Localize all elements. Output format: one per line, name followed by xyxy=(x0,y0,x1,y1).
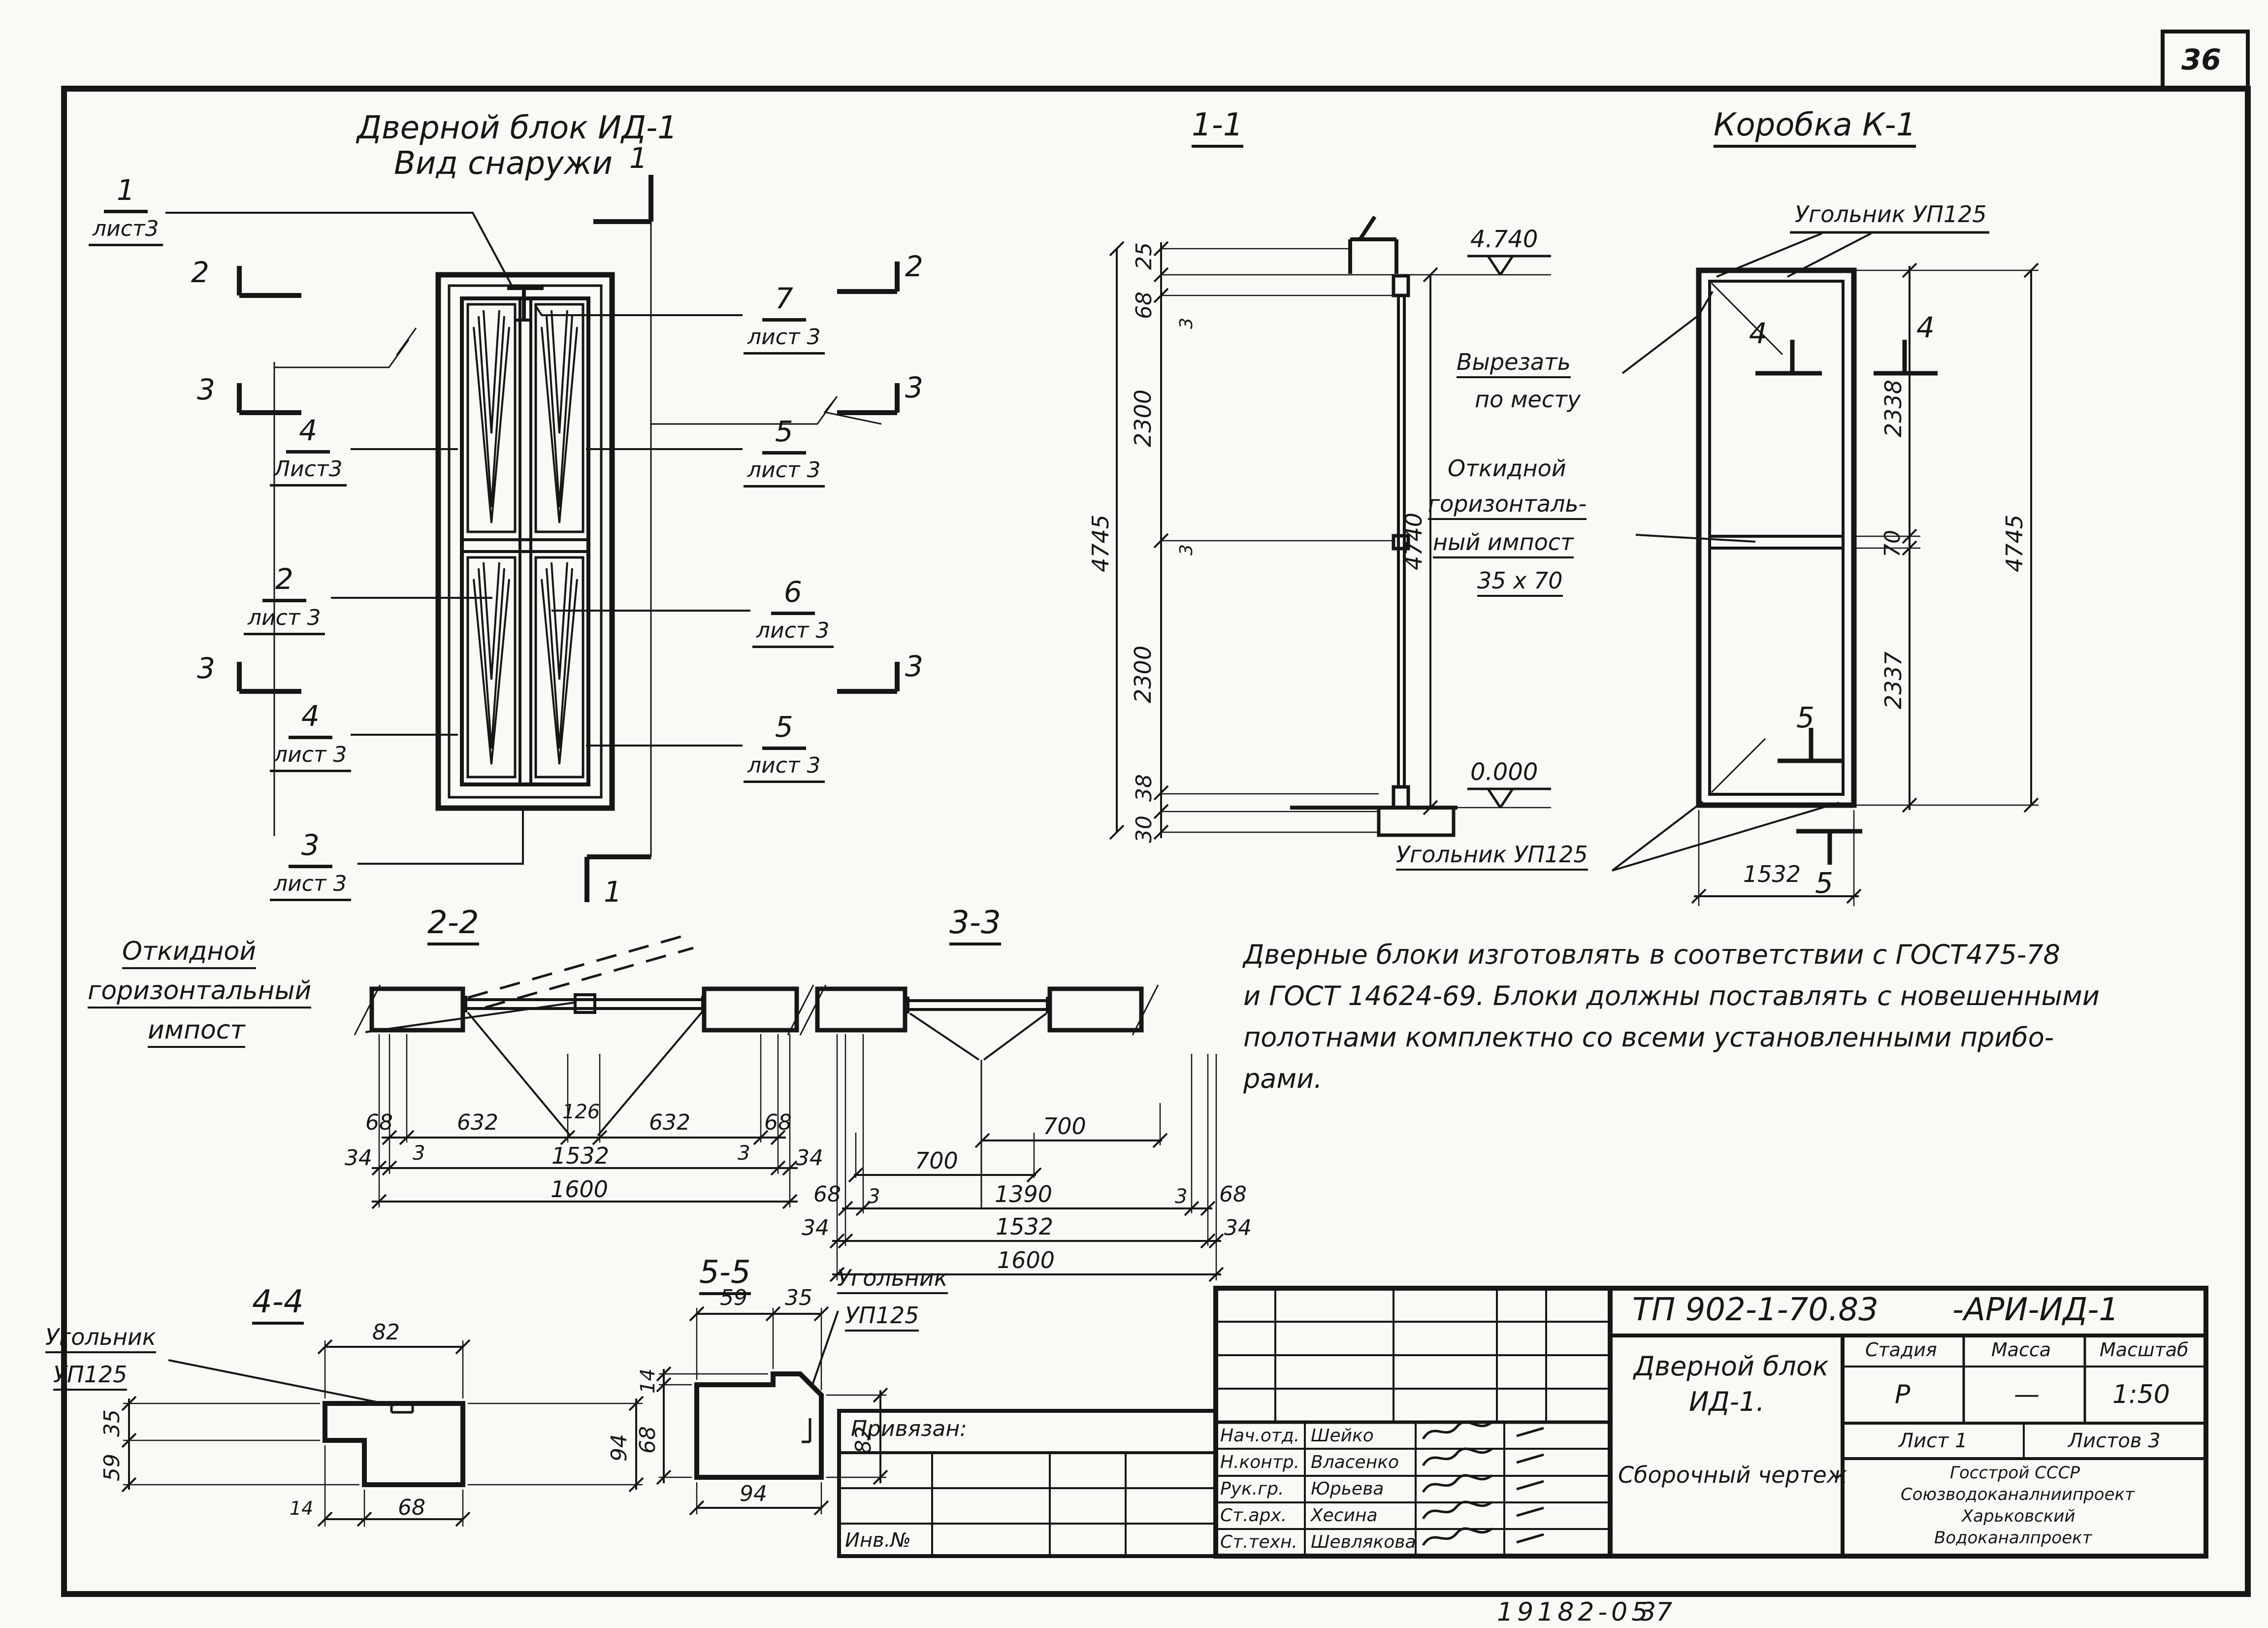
callout-3-number: 3 xyxy=(289,828,332,868)
callout-6-number: 6 xyxy=(771,575,815,615)
callout-4a-sheet-ref: Лист3 xyxy=(270,456,347,487)
section-marker-1-bottom: 1 xyxy=(604,878,622,906)
callout-2-number: 2 xyxy=(262,562,306,602)
elevation-mark-top: 4.740 xyxy=(1470,228,1538,251)
dim-3-3-34a: 34 xyxy=(802,1217,829,1239)
dim-3-3-68b: 68 xyxy=(1219,1184,1247,1205)
korobka-impost-label-line1: Откидной xyxy=(1448,457,1566,480)
callout-2-sheet-ref: лист 3 xyxy=(244,605,325,635)
stamp-title-line3: Сборочный чертеж xyxy=(1618,1464,1847,1486)
korobka-ugolnik-top-label: Угольник УП125 xyxy=(1795,203,1987,226)
dim-3-3-700-left: 700 xyxy=(915,1149,958,1172)
dim-1-1-3b: 3 xyxy=(1178,544,1196,555)
section-1-1-title: 1-1 xyxy=(1192,109,1243,148)
stage-value: Р xyxy=(1895,1382,1910,1407)
dim-3-3-1390: 1390 xyxy=(995,1183,1052,1205)
doc-number: ТП 902-1-70.83 xyxy=(1632,1294,1879,1326)
dim-2-2-632a: 632 xyxy=(457,1112,498,1134)
section-marker-2-left: 2 xyxy=(191,258,209,287)
korobka-linework xyxy=(1612,232,2039,906)
callout-detail-6: 6 лист 3 xyxy=(752,575,834,648)
callout-detail-5a: 5 лист 3 xyxy=(744,415,825,488)
sig-role-3: Ст.арх. xyxy=(1220,1507,1287,1525)
dim-1-1-68: 68 xyxy=(1134,292,1155,319)
ugolnik-label-4-4-line1: Угольник xyxy=(45,1326,156,1353)
mass-label: Масса xyxy=(1991,1340,2051,1359)
dim-2-2-632b: 632 xyxy=(649,1112,690,1134)
korobka-impost-label-line2: горизонталь- xyxy=(1428,492,1587,520)
elevation-mark-bottom: 0.000 xyxy=(1470,760,1538,784)
section-marker-3-left-b: 3 xyxy=(197,654,215,683)
callout-detail-2: 2 лист 3 xyxy=(244,562,325,635)
korobka-marker-5-bottom: 5 xyxy=(1815,869,1833,897)
elevation-title-line1: Дверной блок ИД-1 xyxy=(357,112,678,144)
dim-3-3-700-right: 700 xyxy=(1043,1115,1086,1138)
binding-label: Привязан: xyxy=(851,1418,967,1440)
callout-5b-number: 5 xyxy=(762,710,806,750)
dim-2-2-34a: 34 xyxy=(345,1147,372,1169)
elevation-callout-leaders xyxy=(165,213,750,864)
dim-4-4-68: 68 xyxy=(398,1497,425,1519)
dim-2-2-1532: 1532 xyxy=(551,1144,609,1167)
org-line4: Водоканалпроект xyxy=(1934,1530,2092,1546)
dim-5-5-68: 68 xyxy=(637,1426,659,1454)
section-3-3-title: 3-3 xyxy=(949,907,1001,945)
dim-3-3-3a: 3 xyxy=(868,1187,880,1206)
dim-korobka-total: 4745 xyxy=(2003,515,2026,572)
door-elevation-linework xyxy=(438,275,612,808)
dim-2-2-126: 126 xyxy=(562,1102,600,1122)
callout-7-sheet-ref: лист 3 xyxy=(744,325,825,355)
korobka-impost-label-line4: 35 x 70 xyxy=(1477,569,1563,597)
sig-name-2: Юрьева xyxy=(1311,1480,1384,1498)
sheet-corner-number: 36 xyxy=(2181,45,2221,74)
ugolnik-label-4-4-line2: УП125 xyxy=(53,1363,127,1391)
footer-code: 19182-05 xyxy=(1497,1599,1652,1625)
impost-label-2-2-line1: Откидной xyxy=(122,939,256,969)
note-line3: полотнами комплектно со всеми установлен… xyxy=(1243,1024,2054,1051)
note-line1: Дверные блоки изготовлять в соответствии… xyxy=(1243,942,2060,968)
sig-role-4: Ст.техн. xyxy=(1220,1533,1297,1551)
ugolnik-label-5-5-line1: Угольник xyxy=(837,1267,948,1294)
org-line1: Госстрой СССР xyxy=(1950,1465,2080,1481)
callout-5a-sheet-ref: лист 3 xyxy=(744,457,825,488)
sig-role-1: Н.контр. xyxy=(1220,1454,1299,1471)
dim-1-1-total-left: 4745 xyxy=(1089,515,1112,572)
dim-1-1-2300a: 2300 xyxy=(1132,390,1154,447)
korobka-cut-label-line2: по месту xyxy=(1475,388,1581,411)
dim-1-1-25: 25 xyxy=(1134,242,1155,270)
section-2-2-title: 2-2 xyxy=(427,907,479,945)
korobka-cut-label-line1: Вырезать xyxy=(1457,351,1571,378)
section-marker-3-left-a: 3 xyxy=(197,375,215,404)
dim-3-3-1532: 1532 xyxy=(996,1215,1053,1238)
note-line4: рами. xyxy=(1243,1066,1322,1092)
korobka-impost-label-line3: ный импост xyxy=(1433,531,1574,558)
callout-3-sheet-ref: лист 3 xyxy=(270,871,351,901)
korobka-marker-5-top: 5 xyxy=(1796,703,1814,732)
dim-2-2-34b: 34 xyxy=(796,1147,823,1169)
section-marker-3-right-b: 3 xyxy=(905,652,923,681)
dim-3-3-34b: 34 xyxy=(1224,1217,1252,1239)
stamp-title-line2: ИД-1. xyxy=(1689,1389,1765,1415)
stage-label: Стадия xyxy=(1865,1340,1937,1359)
korobka-ugolnik-bottom-label: Угольник УП125 xyxy=(1396,843,1588,871)
dim-5-5-59: 59 xyxy=(720,1287,747,1309)
callout-1-number: 1 xyxy=(104,173,148,213)
elevation-title-line2: Вид снаружи xyxy=(394,148,613,179)
callout-detail-3: 3 лист 3 xyxy=(270,828,351,901)
org-line2: Союзводоканалниипроект xyxy=(1901,1486,2135,1503)
sig-name-4: Шевлякова xyxy=(1311,1533,1416,1551)
callout-4a-number: 4 xyxy=(286,414,330,454)
signature-scribbles xyxy=(1423,1422,1544,1545)
dim-3-3-3b: 3 xyxy=(1175,1187,1187,1206)
dim-4-4-14: 14 xyxy=(290,1499,313,1518)
sig-name-1: Власенко xyxy=(1311,1454,1399,1471)
callout-detail-1: 1 лист3 xyxy=(89,173,163,246)
dim-4-4-35: 35 xyxy=(101,1409,123,1437)
callout-detail-5b: 5 лист 3 xyxy=(744,710,825,783)
doc-number-suffix: -АРИ-ИД-1 xyxy=(1952,1294,2119,1326)
dim-2-2-68a: 68 xyxy=(365,1112,393,1134)
callout-5a-number: 5 xyxy=(762,415,806,455)
section-marker-1-top: 1 xyxy=(629,144,648,172)
section-marker-2-right: 2 xyxy=(905,252,923,281)
sig-role-0: Нач.отд. xyxy=(1220,1427,1299,1445)
dim-5-5-35: 35 xyxy=(785,1287,812,1309)
note-line2: и ГОСТ 14624-69. Блоки должны поставлять… xyxy=(1243,983,2100,1009)
footer-sheet-number: 37 xyxy=(1640,1599,1672,1625)
callout-1-sheet-ref: лист3 xyxy=(89,216,163,246)
dim-4-4-59: 59 xyxy=(101,1454,123,1481)
section-marker-3-right-a: 3 xyxy=(905,373,923,402)
dim-3-3-1600: 1600 xyxy=(997,1249,1055,1271)
impost-label-2-2-line2: горизонтальный xyxy=(88,978,311,1009)
dim-korobka-70: 70 xyxy=(1882,530,1904,557)
callout-5b-sheet-ref: лист 3 xyxy=(744,753,825,783)
korobka-title: Коробка К-1 xyxy=(1714,109,1916,148)
callout-detail-7: 7 лист 3 xyxy=(744,282,825,355)
scale-value: 1:50 xyxy=(2112,1382,2170,1407)
dim-1-1-30: 30 xyxy=(1134,815,1155,843)
sheets-cell: Листов 3 xyxy=(2068,1431,2161,1451)
section-4-4-linework xyxy=(122,1340,643,1527)
dim-2-2-3b: 3 xyxy=(738,1143,750,1163)
dim-4-4-82: 82 xyxy=(372,1322,400,1343)
inventory-label: Инв.№ xyxy=(845,1530,911,1550)
callout-4b-number: 4 xyxy=(289,699,332,739)
sig-role-2: Рук.гр. xyxy=(1220,1480,1284,1498)
dim-2-2-3a: 3 xyxy=(413,1143,425,1163)
dim-1-1-total-right: 4740 xyxy=(1402,513,1425,570)
dim-4-4-94: 94 xyxy=(609,1434,630,1462)
dim-5-5-94: 94 xyxy=(740,1483,767,1505)
callout-6-sheet-ref: лист 3 xyxy=(752,618,834,648)
impost-label-2-2-line3: импост xyxy=(148,1017,245,1048)
stamp-title-line1: Дверной блок xyxy=(1634,1353,1829,1380)
callout-7-number: 7 xyxy=(762,282,806,322)
callout-detail-4b: 4 лист 3 xyxy=(270,699,351,772)
dim-1-1-2300b: 2300 xyxy=(1132,646,1154,703)
section-4-4-title: 4-4 xyxy=(252,1286,304,1325)
korobka-marker-4-right: 4 xyxy=(1916,313,1935,342)
korobka-marker-4-left: 4 xyxy=(1749,319,1767,348)
scale-label: Масштаб xyxy=(2100,1340,2189,1359)
section-1-1-linework xyxy=(1110,217,1551,839)
org-line3: Харьковский xyxy=(1962,1508,2075,1525)
ugolnik-label-5-5-line2: УП125 xyxy=(845,1304,919,1332)
sheet-cell: Лист 1 xyxy=(1899,1431,1968,1451)
dim-5-5-14: 14 xyxy=(638,1368,658,1394)
drawing-sheet: 36 19182-05 37 Дверной блок ИД-1 Вид сна… xyxy=(0,0,2268,1628)
dim-2-2-68b: 68 xyxy=(764,1112,792,1134)
dim-korobka-2338: 2338 xyxy=(1882,380,1905,437)
dim-1-1-38: 38 xyxy=(1134,774,1155,802)
sig-name-3: Хесина xyxy=(1311,1507,1378,1525)
dim-korobka-width: 1532 xyxy=(1743,863,1801,885)
dim-2-2-1600: 1600 xyxy=(551,1178,608,1201)
sig-name-0: Шейко xyxy=(1311,1427,1374,1445)
callout-detail-4a: 4 Лист3 xyxy=(270,414,347,487)
callout-4b-sheet-ref: лист 3 xyxy=(270,742,351,772)
dim-3-3-68a: 68 xyxy=(813,1184,841,1205)
dim-korobka-2337: 2337 xyxy=(1882,651,1905,709)
dim-1-1-3a: 3 xyxy=(1178,318,1196,329)
mass-value: — xyxy=(2014,1382,2040,1407)
